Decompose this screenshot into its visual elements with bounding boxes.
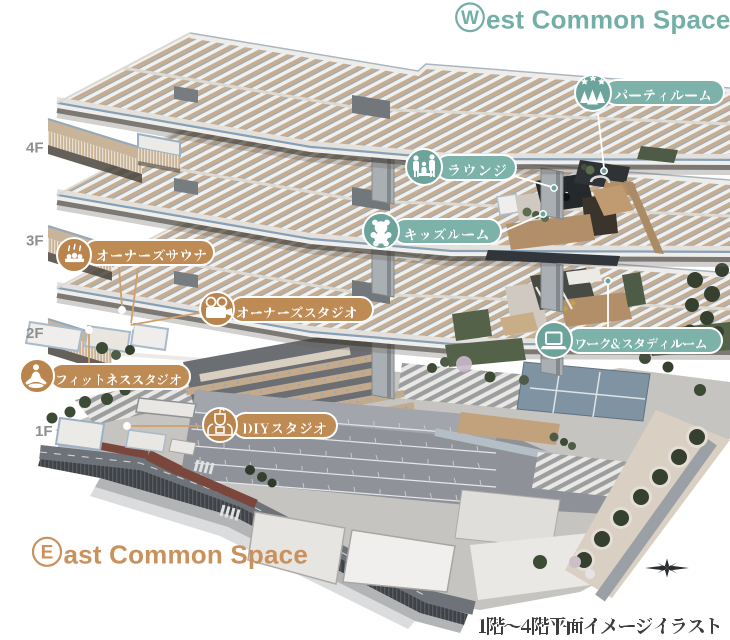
- svg-text:W: W: [461, 8, 479, 29]
- svg-text:4F: 4F: [26, 140, 44, 157]
- svg-text:E: E: [41, 543, 54, 564]
- svg-text:3F: 3F: [26, 233, 44, 250]
- svg-text:est Common Space: est Common Space: [486, 5, 730, 35]
- svg-text:1F: 1F: [35, 423, 53, 440]
- svg-text:2F: 2F: [26, 325, 44, 342]
- svg-text:ast Common Space: ast Common Space: [64, 540, 309, 570]
